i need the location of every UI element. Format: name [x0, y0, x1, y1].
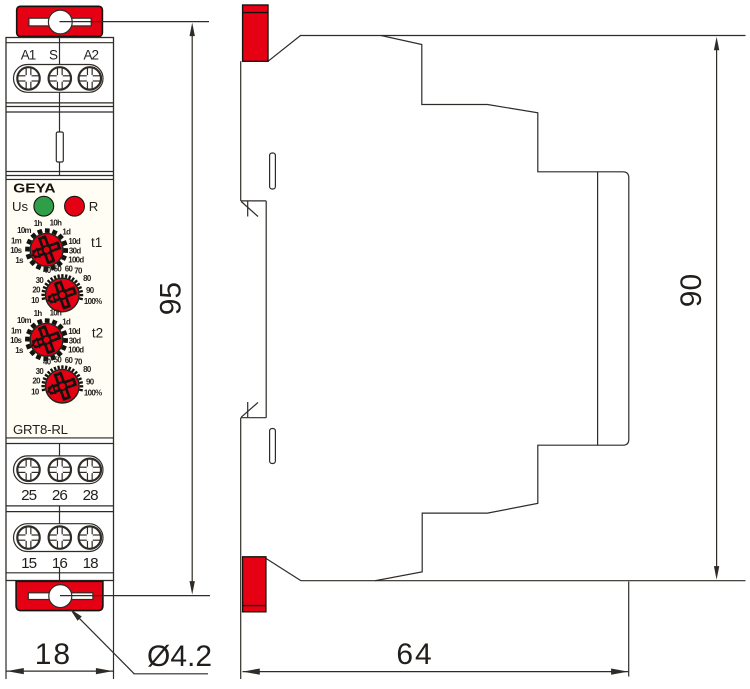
- svg-text:1h: 1h: [34, 219, 43, 228]
- svg-text:90: 90: [675, 274, 708, 307]
- svg-text:GRT8-RL: GRT8-RL: [13, 422, 68, 437]
- svg-text:Ø4.2: Ø4.2: [147, 640, 212, 673]
- svg-text:40: 40: [43, 357, 52, 366]
- svg-text:A1: A1: [21, 48, 36, 63]
- svg-text:10m: 10m: [17, 316, 31, 325]
- svg-text:80: 80: [83, 365, 92, 374]
- svg-text:64: 64: [396, 638, 433, 671]
- svg-text:Us: Us: [12, 199, 29, 214]
- svg-text:1d: 1d: [62, 317, 71, 326]
- svg-text:60: 60: [65, 265, 74, 274]
- svg-text:t1: t1: [91, 235, 102, 250]
- svg-text:70: 70: [74, 358, 83, 367]
- svg-text:25: 25: [21, 487, 37, 504]
- svg-text:90: 90: [86, 377, 95, 386]
- svg-text:100d: 100d: [68, 256, 84, 265]
- svg-text:90: 90: [86, 286, 95, 295]
- svg-text:1h: 1h: [34, 309, 43, 318]
- svg-text:50: 50: [54, 264, 63, 273]
- svg-text:10: 10: [31, 387, 40, 396]
- svg-text:80: 80: [83, 274, 92, 283]
- svg-text:28: 28: [83, 487, 99, 504]
- svg-text:1s: 1s: [15, 256, 24, 265]
- svg-text:10s: 10s: [10, 246, 22, 255]
- svg-text:10h: 10h: [50, 218, 62, 227]
- svg-text:50: 50: [54, 356, 63, 365]
- svg-text:20: 20: [32, 377, 41, 386]
- svg-text:GEYA: GEYA: [13, 182, 55, 197]
- svg-text:26: 26: [52, 487, 68, 504]
- svg-text:20: 20: [32, 286, 41, 295]
- svg-text:10d: 10d: [68, 237, 80, 246]
- svg-text:10d: 10d: [68, 327, 80, 336]
- svg-text:60: 60: [65, 356, 74, 365]
- svg-text:30d: 30d: [69, 246, 81, 255]
- svg-text:18: 18: [35, 638, 72, 671]
- svg-text:100%: 100%: [84, 388, 102, 397]
- svg-text:30: 30: [36, 276, 45, 285]
- svg-text:95: 95: [154, 282, 187, 315]
- svg-text:10s: 10s: [10, 336, 22, 345]
- svg-text:10h: 10h: [50, 308, 62, 317]
- svg-text:15: 15: [21, 555, 37, 572]
- svg-text:A2: A2: [83, 48, 98, 63]
- svg-text:40: 40: [43, 266, 52, 275]
- svg-text:t2: t2: [92, 326, 103, 341]
- svg-text:100d: 100d: [68, 346, 84, 355]
- svg-text:100%: 100%: [84, 297, 102, 306]
- svg-text:30d: 30d: [69, 336, 81, 345]
- svg-text:70: 70: [74, 266, 83, 275]
- svg-text:1s: 1s: [15, 346, 24, 355]
- svg-text:1m: 1m: [11, 236, 22, 245]
- svg-text:30: 30: [36, 367, 45, 376]
- svg-text:10: 10: [31, 296, 40, 305]
- svg-text:1d: 1d: [62, 227, 71, 236]
- svg-text:1m: 1m: [11, 326, 22, 335]
- svg-text:18: 18: [83, 555, 99, 572]
- svg-text:S: S: [49, 48, 58, 63]
- svg-text:10m: 10m: [17, 226, 31, 235]
- svg-text:R: R: [89, 199, 99, 214]
- svg-text:16: 16: [52, 555, 68, 572]
